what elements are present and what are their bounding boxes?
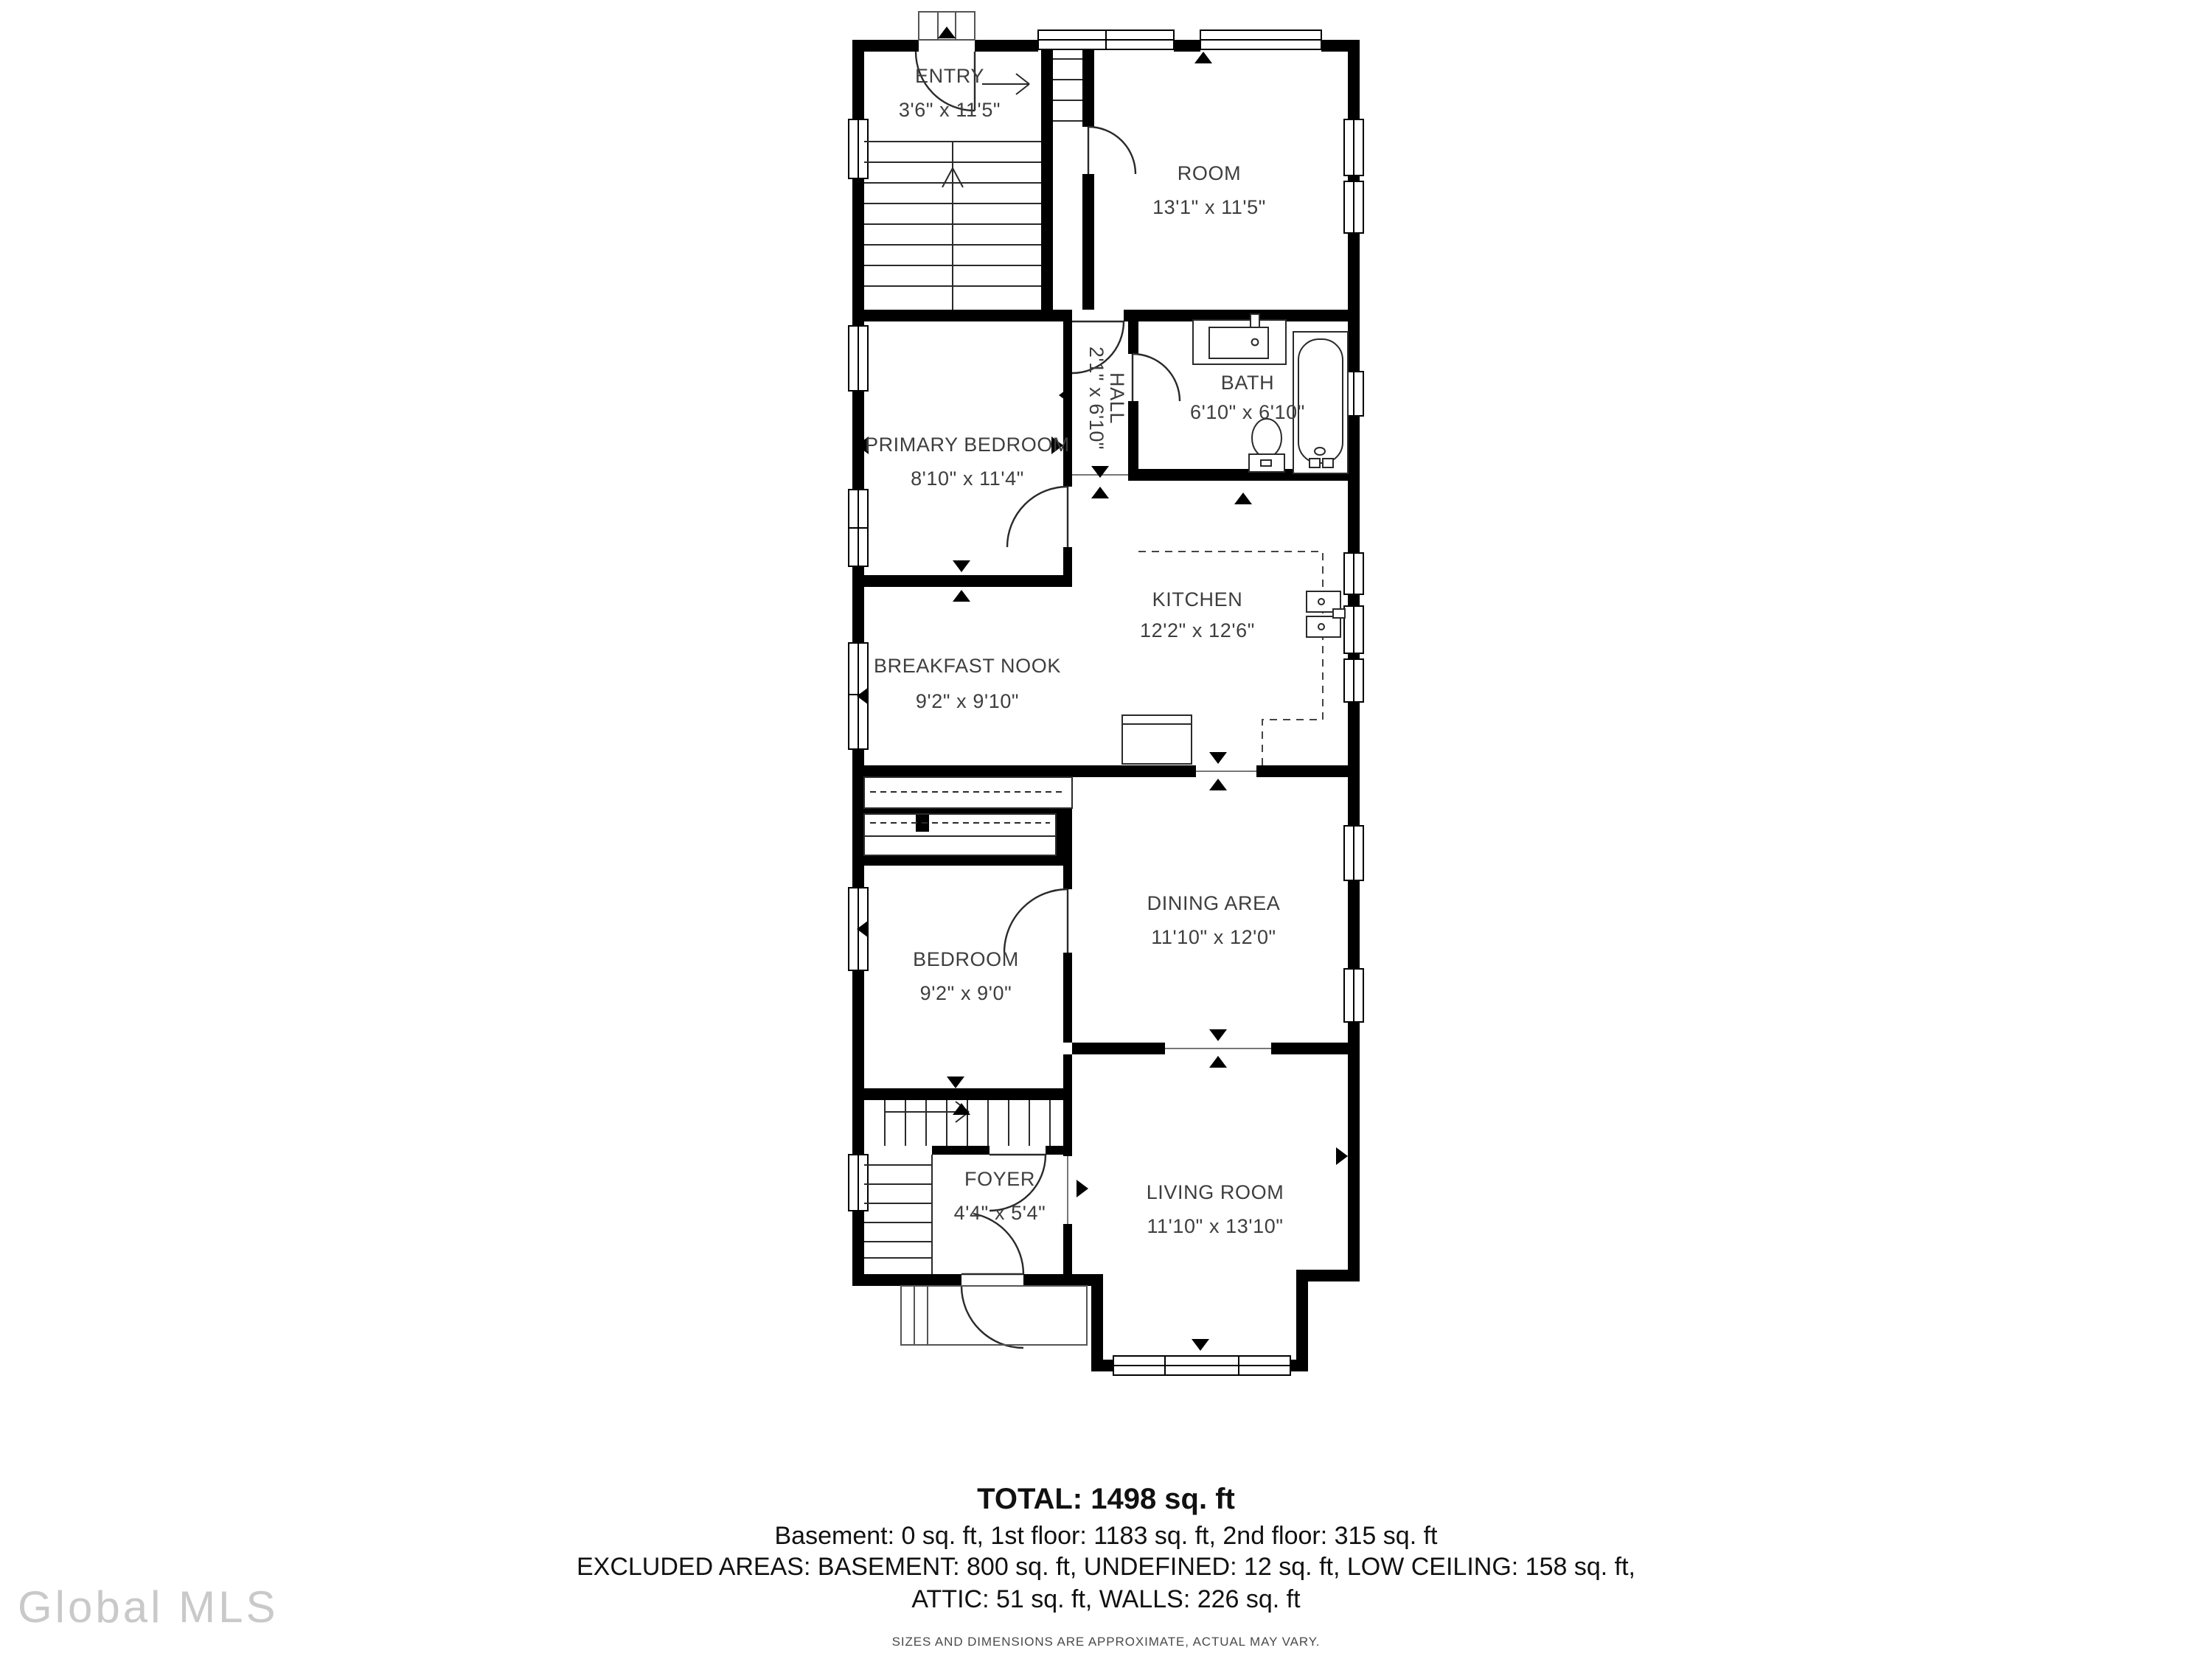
bedroom-door bbox=[1004, 889, 1068, 953]
window-right-room-2 bbox=[1344, 181, 1363, 233]
bedroom-dims: 9'2" x 9'0" bbox=[920, 982, 1012, 1004]
window-right-dining-1 bbox=[1344, 826, 1363, 880]
arrow-up-nook bbox=[953, 590, 970, 602]
arrow-up-entry bbox=[938, 27, 956, 38]
room-label: ROOM bbox=[1178, 162, 1241, 184]
room-dims: 13'1" x 11'5" bbox=[1152, 196, 1266, 218]
breakfast-nook-label: BREAKFAST NOOK bbox=[874, 655, 1061, 677]
floor-areas-text: Basement: 0 sq. ft, 1st floor: 1183 sq. … bbox=[0, 1522, 2212, 1551]
closets bbox=[864, 777, 1072, 855]
arrow-up-kitchen-hall bbox=[1091, 487, 1109, 498]
opening-arrows bbox=[857, 27, 1348, 1351]
living-room-dims: 11'10" x 13'10" bbox=[1147, 1215, 1283, 1237]
total-area-text: TOTAL: 1498 sq. ft bbox=[0, 1484, 2212, 1517]
front-stoop bbox=[901, 1286, 1087, 1345]
window-right-kitchen-2 bbox=[1344, 606, 1363, 653]
window-right-room-1 bbox=[1344, 119, 1363, 175]
breakfast-nook-dims: 9'2" x 9'10" bbox=[916, 690, 1019, 712]
arrow-up-dining-living bbox=[1209, 1056, 1227, 1068]
open-passages bbox=[1068, 475, 1271, 1224]
hall-label: HALL bbox=[1106, 372, 1128, 424]
primary-bedroom-label: PRIMARY BEDROOM bbox=[865, 434, 1070, 456]
arrow-down-hall bbox=[1091, 466, 1109, 478]
window-left-stair bbox=[849, 119, 868, 178]
bath-label: BATH bbox=[1221, 372, 1274, 394]
entry-dims: 3'6" x 11'5" bbox=[899, 99, 1001, 121]
living-room-label: LIVING ROOM bbox=[1147, 1181, 1284, 1203]
window-left-foyer bbox=[849, 1155, 868, 1211]
window-right-dining-2 bbox=[1344, 969, 1363, 1022]
floor-plan-page: ENTRY 3'6" x 11'5" ROOM 13'1" x 11'5" PR… bbox=[0, 0, 2212, 1659]
primary-bedroom-door bbox=[1007, 487, 1068, 547]
kitchen-sink bbox=[1307, 591, 1345, 637]
primary-bedroom-dims: 8'10" x 11'4" bbox=[911, 467, 1024, 490]
window-right-kitchen-3 bbox=[1344, 659, 1363, 702]
foyer-dims: 4'4" x 5'4" bbox=[954, 1202, 1046, 1224]
window-right-kitchen-1 bbox=[1344, 553, 1363, 594]
dining-area-dims: 11'10" x 12'0" bbox=[1151, 926, 1276, 948]
toilet bbox=[1249, 419, 1284, 472]
floor-plan-drawing: ENTRY 3'6" x 11'5" ROOM 13'1" x 11'5" PR… bbox=[0, 0, 2212, 1659]
arrow-down-bedroom bbox=[947, 1077, 964, 1088]
arrow-down-dining-living bbox=[1209, 1029, 1227, 1041]
arrow-down-kitchen-dining bbox=[1209, 752, 1227, 764]
dining-area-label: DINING AREA bbox=[1147, 892, 1281, 914]
bedroom-label: BEDROOM bbox=[913, 948, 1019, 970]
bath-dims: 6'10" x 6'10" bbox=[1190, 401, 1305, 423]
global-mls-watermark: Global MLS bbox=[18, 1587, 279, 1631]
window-top-2 bbox=[1200, 30, 1321, 49]
kitchen-dims: 12'2" x 12'6" bbox=[1140, 619, 1255, 641]
excluded-areas-text-1: EXCLUDED AREAS: BASEMENT: 800 sq. ft, UN… bbox=[0, 1553, 2212, 1582]
front-door bbox=[961, 1286, 1023, 1348]
window-top-1 bbox=[1038, 30, 1174, 49]
window-bay bbox=[1113, 1356, 1290, 1375]
arrow-down-bay bbox=[1192, 1339, 1209, 1351]
range bbox=[1122, 715, 1192, 764]
arrow-up-kitchen-dining bbox=[1209, 779, 1227, 790]
arrow-right-foyer-living bbox=[1077, 1180, 1088, 1197]
hall-dims: 2'1" x 6'10" bbox=[1085, 347, 1107, 450]
window-left-primary-2 bbox=[849, 490, 868, 566]
foyer-label: FOYER bbox=[964, 1168, 1035, 1190]
room-door bbox=[1088, 127, 1135, 174]
entry-label: ENTRY bbox=[915, 65, 984, 87]
arrow-up-room bbox=[1194, 52, 1212, 63]
arrow-down-primary bbox=[953, 560, 970, 572]
excluded-areas-text-2: ATTIC: 51 sq. ft, WALLS: 226 sq. ft bbox=[0, 1585, 2212, 1615]
arrow-right-living bbox=[1336, 1147, 1348, 1165]
disclaimer-text: SIZES AND DIMENSIONS ARE APPROXIMATE, AC… bbox=[0, 1634, 2212, 1649]
bath-vanity-sink bbox=[1193, 314, 1286, 364]
arrow-up-kitchen bbox=[1234, 493, 1252, 504]
kitchen-label: KITCHEN bbox=[1152, 588, 1243, 611]
bath-door bbox=[1133, 354, 1180, 401]
window-left-primary-1 bbox=[849, 326, 868, 391]
